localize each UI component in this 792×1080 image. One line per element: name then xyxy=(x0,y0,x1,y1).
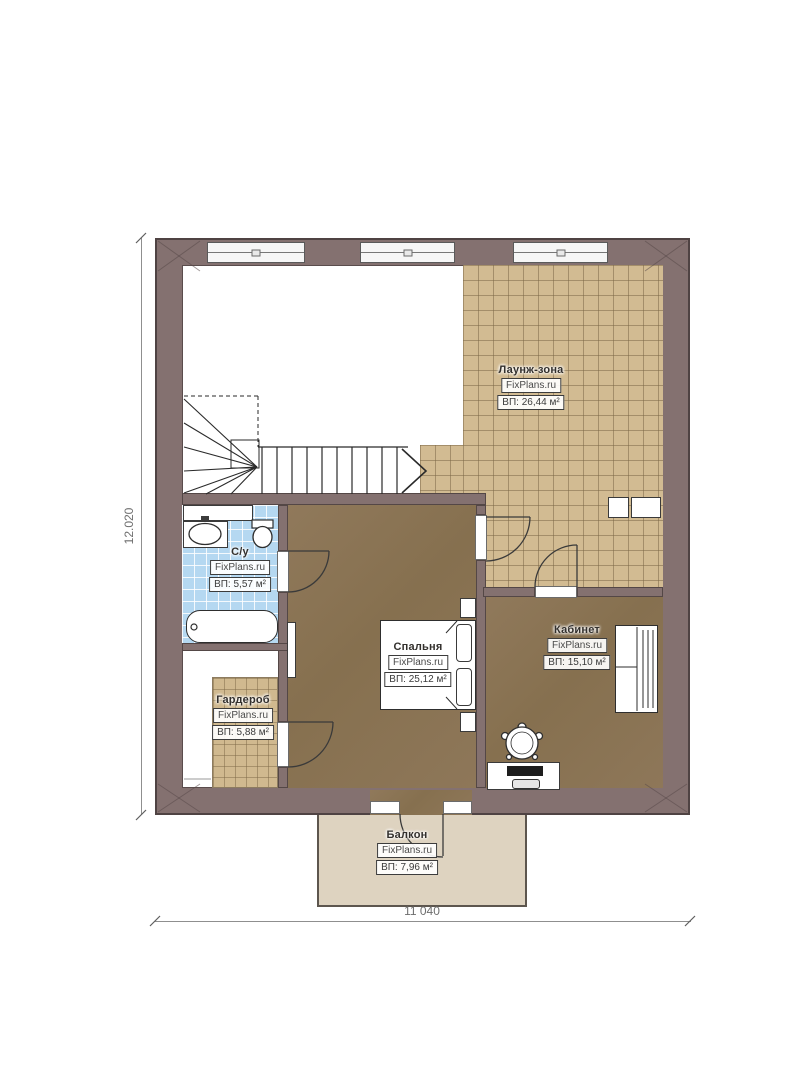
lounge-floor xyxy=(463,265,663,587)
window-mullion-icon xyxy=(403,249,412,256)
room-name: Балкон xyxy=(387,829,428,841)
lounge-wall-unit-single xyxy=(608,497,629,518)
room-name: Лаунж-зона xyxy=(498,364,563,376)
window-mullion-icon xyxy=(252,249,261,256)
wall-under-stairs xyxy=(182,493,486,505)
sink-counter xyxy=(183,521,228,548)
door-threshold-office xyxy=(535,586,577,598)
watermark-box: FixPlans.ru xyxy=(213,708,273,723)
room-label-bathroom: С/у FixPlans.ru ВП: 5,57 м² xyxy=(209,546,271,592)
watermark-box: FixPlans.ru xyxy=(210,560,270,575)
window-top-3 xyxy=(513,242,608,263)
wall-lounge-office-left xyxy=(483,587,535,597)
balcony-sidelight-right xyxy=(443,801,472,814)
window-top-1 xyxy=(207,242,305,263)
area-box: ВП: 15,10 м² xyxy=(543,655,610,670)
watermark-box: FixPlans.ru xyxy=(501,378,561,393)
pillow xyxy=(456,624,472,662)
room-name: Гардероб xyxy=(216,694,270,706)
wall-lounge-office-right xyxy=(577,587,663,597)
area-box: ВП: 26,44 м² xyxy=(497,395,564,410)
room-label-wardrobe: Гардероб FixPlans.ru ВП: 5,88 м² xyxy=(212,694,274,740)
balcony-sidelight-left xyxy=(370,801,400,814)
nightstand-top xyxy=(460,598,476,618)
pillow xyxy=(456,668,472,706)
room-label-bedroom: Спальня FixPlans.ru ВП: 25,12 м² xyxy=(384,641,451,687)
watermark-box: FixPlans.ru xyxy=(388,655,448,670)
room-name: Спальня xyxy=(394,641,443,653)
nightstand-bottom xyxy=(460,712,476,732)
area-box: ВП: 5,57 м² xyxy=(209,577,271,592)
area-box: ВП: 7,96 м² xyxy=(376,860,438,875)
wall-under-bathtub xyxy=(182,643,288,651)
watermark-box: FixPlans.ru xyxy=(377,843,437,858)
area-box: ВП: 5,88 м² xyxy=(212,725,274,740)
watermark-box: FixPlans.ru xyxy=(547,638,607,653)
window-mullion-icon xyxy=(556,249,565,256)
door-threshold-bathroom xyxy=(277,551,289,592)
wall-bedroom-right-upper xyxy=(476,505,486,515)
area-box: ВП: 25,12 м² xyxy=(384,672,451,687)
office-wardrobe-cabinet xyxy=(615,625,658,713)
bathtub xyxy=(186,610,278,643)
room-name: Кабинет xyxy=(554,624,600,636)
lounge-wall-unit-double xyxy=(631,497,661,518)
room-name: С/у xyxy=(231,546,249,558)
dimension-line-left xyxy=(141,238,142,815)
window-top-2 xyxy=(360,242,455,263)
lounge-floor-extension xyxy=(420,445,463,493)
wall-bathroom-upper xyxy=(278,505,288,551)
door-threshold-wardrobe xyxy=(277,722,289,767)
room-label-lounge: Лаунж-зона FixPlans.ru ВП: 26,44 м² xyxy=(497,364,564,410)
dimension-line-bottom xyxy=(155,921,691,922)
door-threshold-bedroom-lounge xyxy=(475,515,487,560)
room-label-balcony: Балкон FixPlans.ru ВП: 7,96 м² xyxy=(376,829,438,875)
wall-wardrobe-lower xyxy=(278,767,288,788)
desk-keyboard xyxy=(512,779,540,789)
room-label-office: Кабинет FixPlans.ru ВП: 15,10 м² xyxy=(543,624,610,670)
dimension-text-bottom: 11 040 xyxy=(404,904,440,918)
dimension-text-left: 12.020 xyxy=(122,508,136,545)
bathroom-shelf xyxy=(183,505,253,521)
desk-monitor xyxy=(507,766,543,776)
floor-plan-canvas: Лаунж-зона FixPlans.ru ВП: 26,44 м² С/у … xyxy=(0,0,792,1080)
bedroom-dresser xyxy=(287,622,296,678)
